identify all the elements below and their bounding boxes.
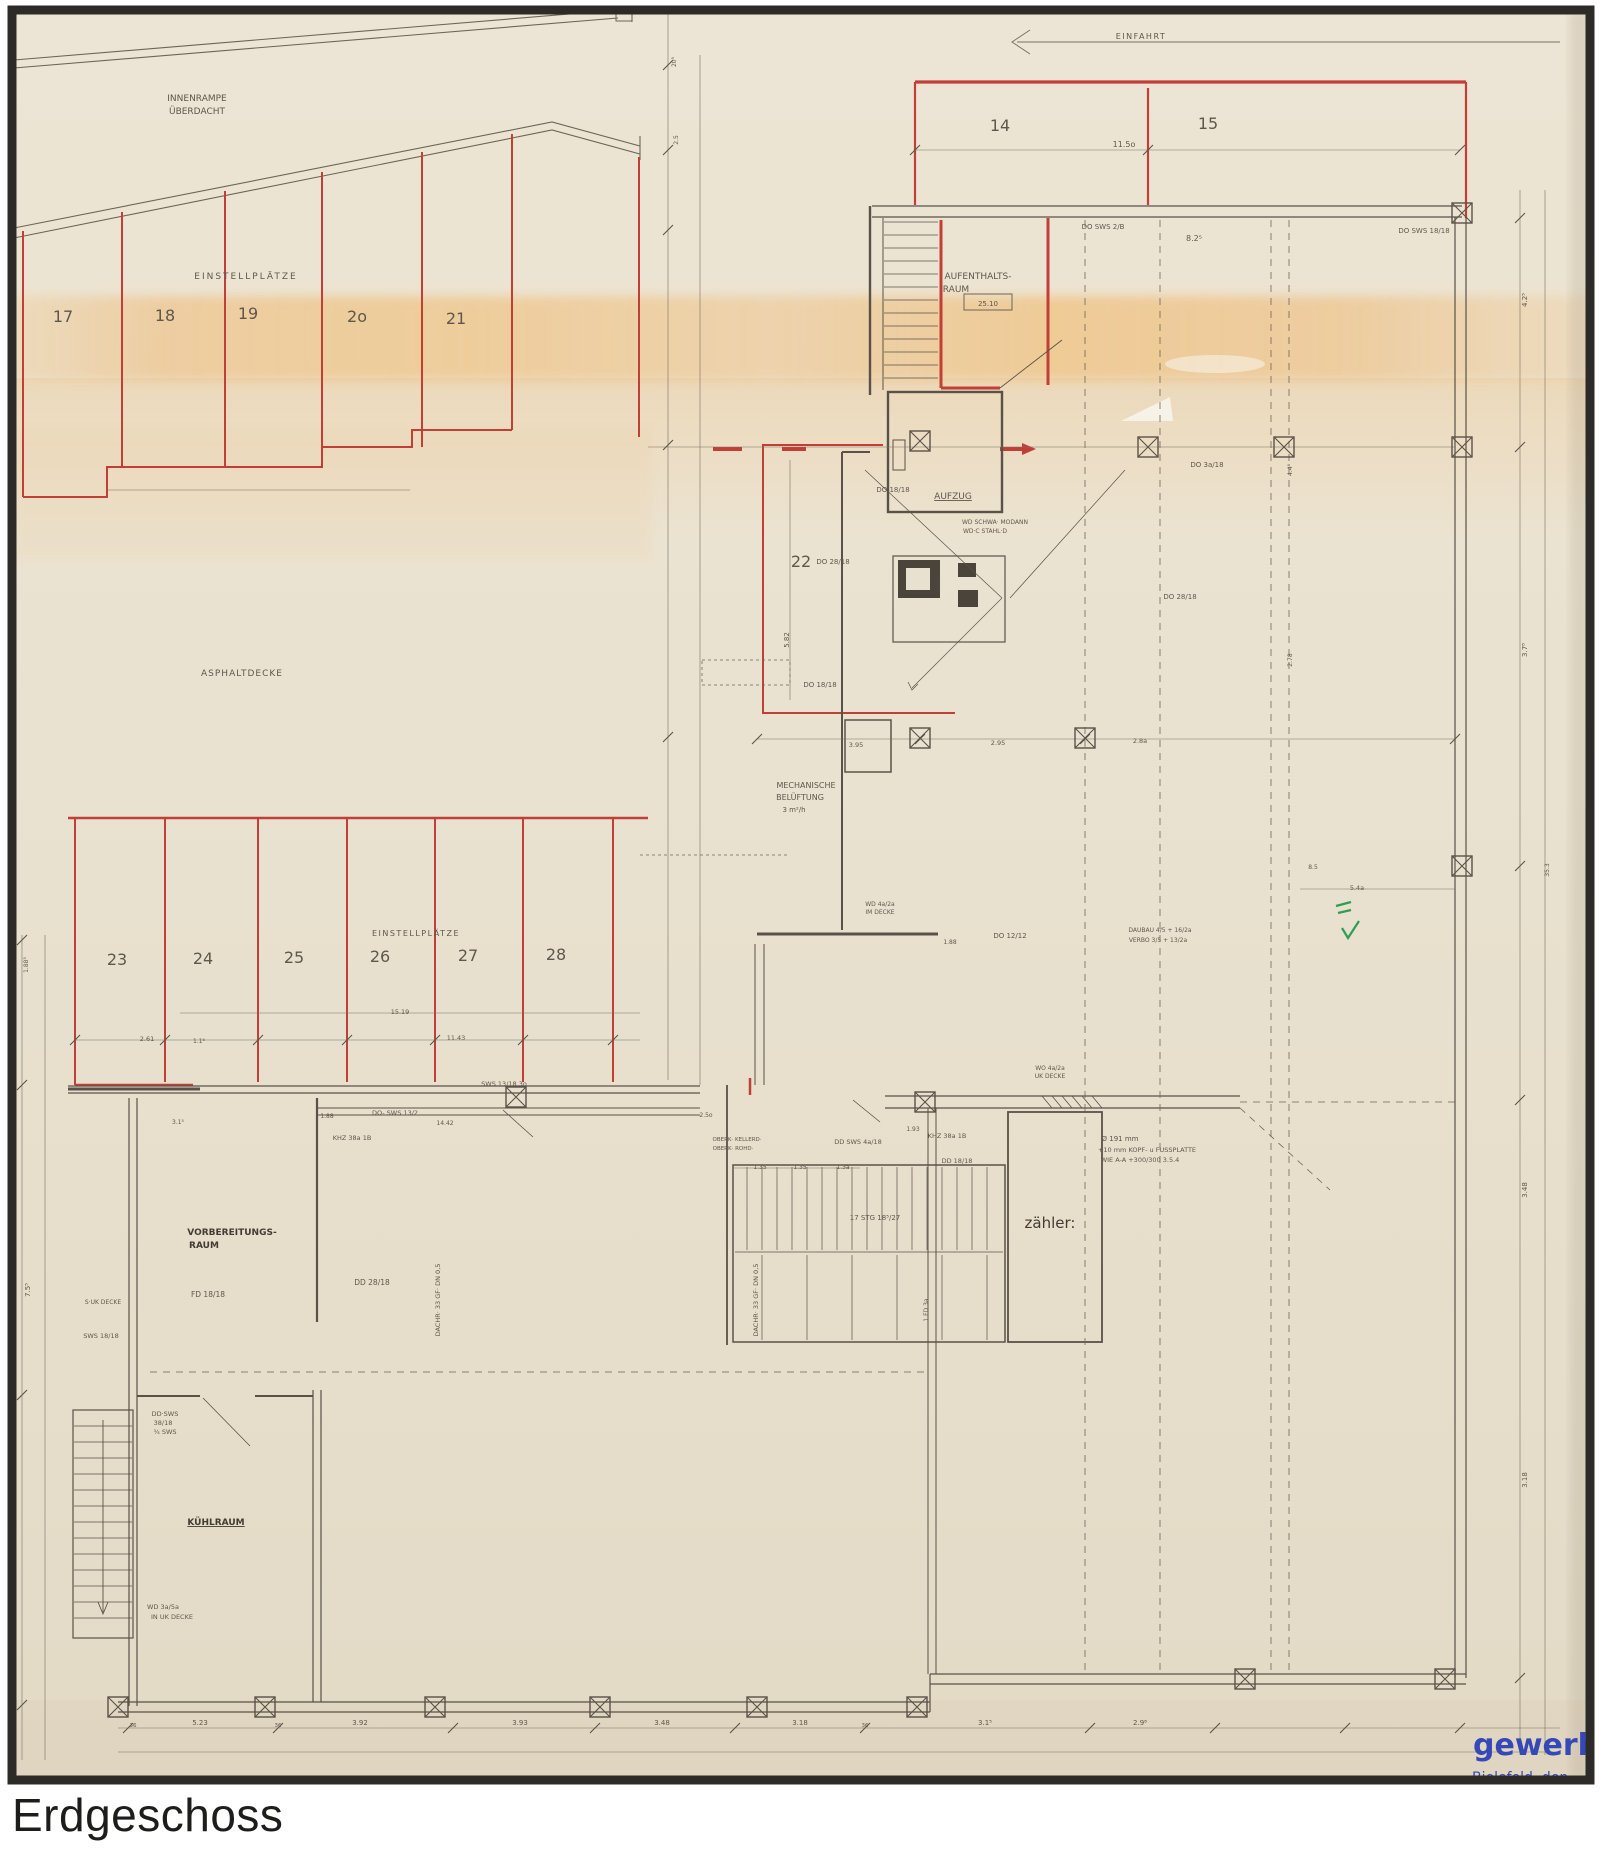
dim-b-3-18: 3.18 — [792, 1719, 808, 1727]
label-einstellplaetze-upper: EINSTELLPLÄTZE — [194, 271, 297, 282]
dim-2-5o: 2.5o — [699, 1112, 713, 1119]
dim-b-3-48: 3.48 — [654, 1719, 670, 1727]
space-27: 27 — [458, 946, 478, 965]
dim-dd-1818: DD 18/18 — [942, 1157, 973, 1165]
dim-4-48: 4.4⁸ — [1287, 463, 1294, 476]
label-kuehlraum: KÜHLRAUM — [187, 1517, 244, 1528]
dim-1-3a: 1.3a — [836, 1164, 850, 1171]
dim-5-82: 5.82 — [783, 632, 791, 648]
note-kopfplatte-2: +10 mm KOPF- u FUSSPLATTE — [1098, 1146, 1196, 1154]
dim-b-3-92: 3.92 — [352, 1719, 368, 1727]
space-15: 15 — [1198, 114, 1218, 133]
dim-wo-4a2a-1: WO 4a/2a — [1035, 1065, 1065, 1072]
label-zaehler: zähler: — [1025, 1214, 1076, 1232]
dim-do-sws-2b: DO SWS 2/B — [1082, 223, 1125, 231]
dim-1-fd-3a: 1 FD 3a — [923, 1298, 930, 1322]
dim-wd-stahl: WD·C STAHL·D — [963, 528, 1007, 535]
dim-verbo: VERBO 3/5 + 13/2a — [1129, 937, 1188, 944]
dim-do-sws-132: DO- SWS 13/2 — [372, 1109, 418, 1117]
dim-2-95: 2.95 — [991, 739, 1005, 747]
dim-dd-sws-3: ¾ SWS — [153, 1428, 176, 1436]
space-24: 24 — [193, 949, 213, 968]
dim-dd-sws-2: 38/18 — [154, 1419, 173, 1427]
floor-title: Erdgeschoss — [12, 1788, 283, 1842]
dim-wo-4a2a-2: UK DECKE — [1035, 1073, 1066, 1080]
dim-oberk-2: OBERK· ROHD· — [713, 1146, 754, 1152]
dim-b-2-98: 2.9⁸ — [1133, 1719, 1147, 1727]
dim-b-36-a: 36 — [130, 1723, 137, 1729]
label-innenrampe-2: ÜBERDACHT — [169, 106, 226, 117]
dim-dd-sws-4a18: DD SWS 4a/18 — [834, 1138, 881, 1146]
floor-plan-page: INNENRAMPEÜBERDACHTEINSTELLPLÄTZE1718192… — [0, 0, 1604, 1849]
dim-do-1818-b: DO 18/18 — [803, 681, 836, 689]
label-aufenthaltsraum-1: AUFENTHALTS- — [945, 272, 1012, 282]
space-21: 21 — [446, 309, 466, 328]
dim-dd-sws-1: DD·SWS — [152, 1410, 179, 1418]
space-17: 17 — [53, 307, 73, 326]
dim-1-16: 1.1⁶ — [193, 1038, 206, 1045]
dim-14-42: 14.42 — [436, 1120, 453, 1127]
dim-b-36-b: 36 — [275, 1723, 282, 1729]
dim-do-2818-a: DO 28/18 — [816, 558, 849, 566]
dim-daubau: DAUBAU 4/5 + 16/2a — [1128, 927, 1192, 934]
label-vorbereitung-1: VORBEREITUNGS- — [187, 1228, 277, 1238]
dim-wd-schwa: WD SCHWA· MODANN — [962, 519, 1028, 526]
dim-oberk-1: OBERK· KELLERD· — [713, 1137, 762, 1143]
note-kopfplatte-1: Ø 191 mm — [1102, 1135, 1139, 1143]
label-aufenthaltsraum-2: RAUM — [943, 285, 969, 295]
dim-3-78: 3.7⁸ — [1521, 643, 1529, 657]
dim-3-18-r: 3.18 — [1521, 1472, 1529, 1488]
dim-sws-1318: SWS 13/18 3o — [481, 1080, 527, 1088]
dim-2-8a: 2.8a — [1133, 737, 1147, 745]
dim-khz-a: KHZ 38a 1B — [333, 1134, 372, 1142]
space-18: 18 — [155, 306, 175, 325]
dim-1-88-a: 1.88 — [943, 939, 957, 946]
dim-do-sws-1818: DO SWS 18/18 — [1398, 227, 1449, 235]
dim-11-5: 11.5o — [1113, 140, 1136, 149]
dim-2-78: 2.78 — [1287, 653, 1294, 667]
dim-11-43: 11.43 — [447, 1034, 466, 1042]
dim-8-25: 8.2⁵ — [1186, 234, 1202, 243]
label-mech-1: MECHANISCHE — [776, 781, 835, 790]
dim-b-36-c: 36 — [862, 1723, 869, 1729]
dim-8-5: 8.5 — [1308, 864, 1318, 871]
dim-2-5: 2.5 — [673, 135, 680, 145]
space-28: 28 — [546, 945, 566, 964]
dim-do-1818-a: DO 18/18 — [876, 486, 909, 494]
floor-plan-drawing: INNENRAMPEÜBERDACHTEINSTELLPLÄTZE1718192… — [0, 0, 1604, 1849]
dim-3-48-r: 3.48 — [1521, 1182, 1529, 1198]
dim-1-93: 1.93 — [906, 1126, 920, 1133]
dim-3-95: 3.95 — [849, 741, 863, 749]
dim-15-19: 15.19 — [391, 1008, 410, 1016]
dim-dd-2818: DD 28/18 — [354, 1278, 390, 1287]
dim-s-uk-decke: S·UK DECKE — [85, 1299, 121, 1306]
label-vorbereitung-2: RAUM — [189, 1241, 219, 1251]
dim-1-88-b: 1.88 — [320, 1113, 334, 1120]
dim-5-4a: 5.4a — [1350, 884, 1364, 892]
label-aufzug: AUFZUG — [934, 492, 972, 502]
dim-wd-4a2a-2: IM DECKE — [865, 909, 894, 916]
dim-stairs: 17 STG 18⁵/27 — [850, 1214, 900, 1222]
dim-20-5: 20⁵ — [671, 56, 678, 67]
space-20: 2o — [347, 307, 367, 326]
label-einfahrt: EINFAHRT — [1116, 32, 1167, 41]
dim-wd-4a2a-1: WD 4a/2a — [865, 901, 895, 908]
dim-wd-3a5a-2: IN UK DECKE — [151, 1613, 193, 1621]
dim-1-35-b: 1.35 — [793, 1164, 807, 1171]
space-19: 19 — [238, 304, 258, 323]
dim-7-55: 7.5⁵ — [24, 1283, 32, 1297]
dim-35-3: 35.3 — [1544, 863, 1551, 877]
dim-do-3a18: DO 3a/18 — [1190, 461, 1223, 469]
space-14: 14 — [990, 116, 1010, 135]
dim-fd-1818: FD 18/18 — [191, 1290, 225, 1299]
dim-sws-1818: SWS 18/18 — [83, 1332, 118, 1340]
label-mech-2: BELÜFTUNG — [776, 792, 824, 802]
dim-khz-b: KHZ 38a 1B — [928, 1132, 967, 1140]
dim-do-1212: DO 12/12 — [993, 932, 1026, 940]
dim-wd-3a5a-1: WD 3a/5a — [147, 1603, 179, 1611]
dim-3-15: 3.1⁵ — [172, 1119, 185, 1126]
space-25: 25 — [284, 948, 304, 967]
dim-1-35-a: 1.35 — [753, 1164, 767, 1171]
dim-b-3-15: 3.1⁵ — [978, 1719, 992, 1727]
label-asphaltdecke: ASPHALTDECKE — [201, 669, 283, 679]
space-22: 22 — [791, 552, 811, 571]
space-23: 23 — [107, 950, 127, 969]
dim-do-2818-b: DO 28/18 — [1163, 593, 1196, 601]
stamp-company: gewerbebau — [1473, 1728, 1604, 1763]
dim-1-885: 1.88⁵ — [23, 957, 30, 973]
dim-b-5-23: 5.23 — [192, 1719, 208, 1727]
dim-dachr-1: DACHR· 33 GF· DN 0,5 — [434, 1264, 442, 1337]
space-26: 26 — [370, 947, 390, 966]
dim-2-61: 2.61 — [140, 1035, 154, 1043]
label-innenrampe-1: INNENRAMPE — [167, 94, 227, 104]
room-size-box: 25.10 — [978, 300, 998, 308]
label-einstellplaetze-lower: EINSTELLPLÄTZE — [372, 928, 460, 938]
dim-b-3-93: 3.93 — [512, 1719, 528, 1727]
label-mech-3: 3 m²/h — [782, 806, 805, 814]
dim-4-25: 4.2⁵ — [1521, 293, 1529, 307]
note-kopfplatte-3: WIE A-A +300/300 3.5.4 — [1101, 1156, 1180, 1164]
dim-dachr-2: DACHR· 33 GF· DN 0,5 — [752, 1264, 760, 1337]
